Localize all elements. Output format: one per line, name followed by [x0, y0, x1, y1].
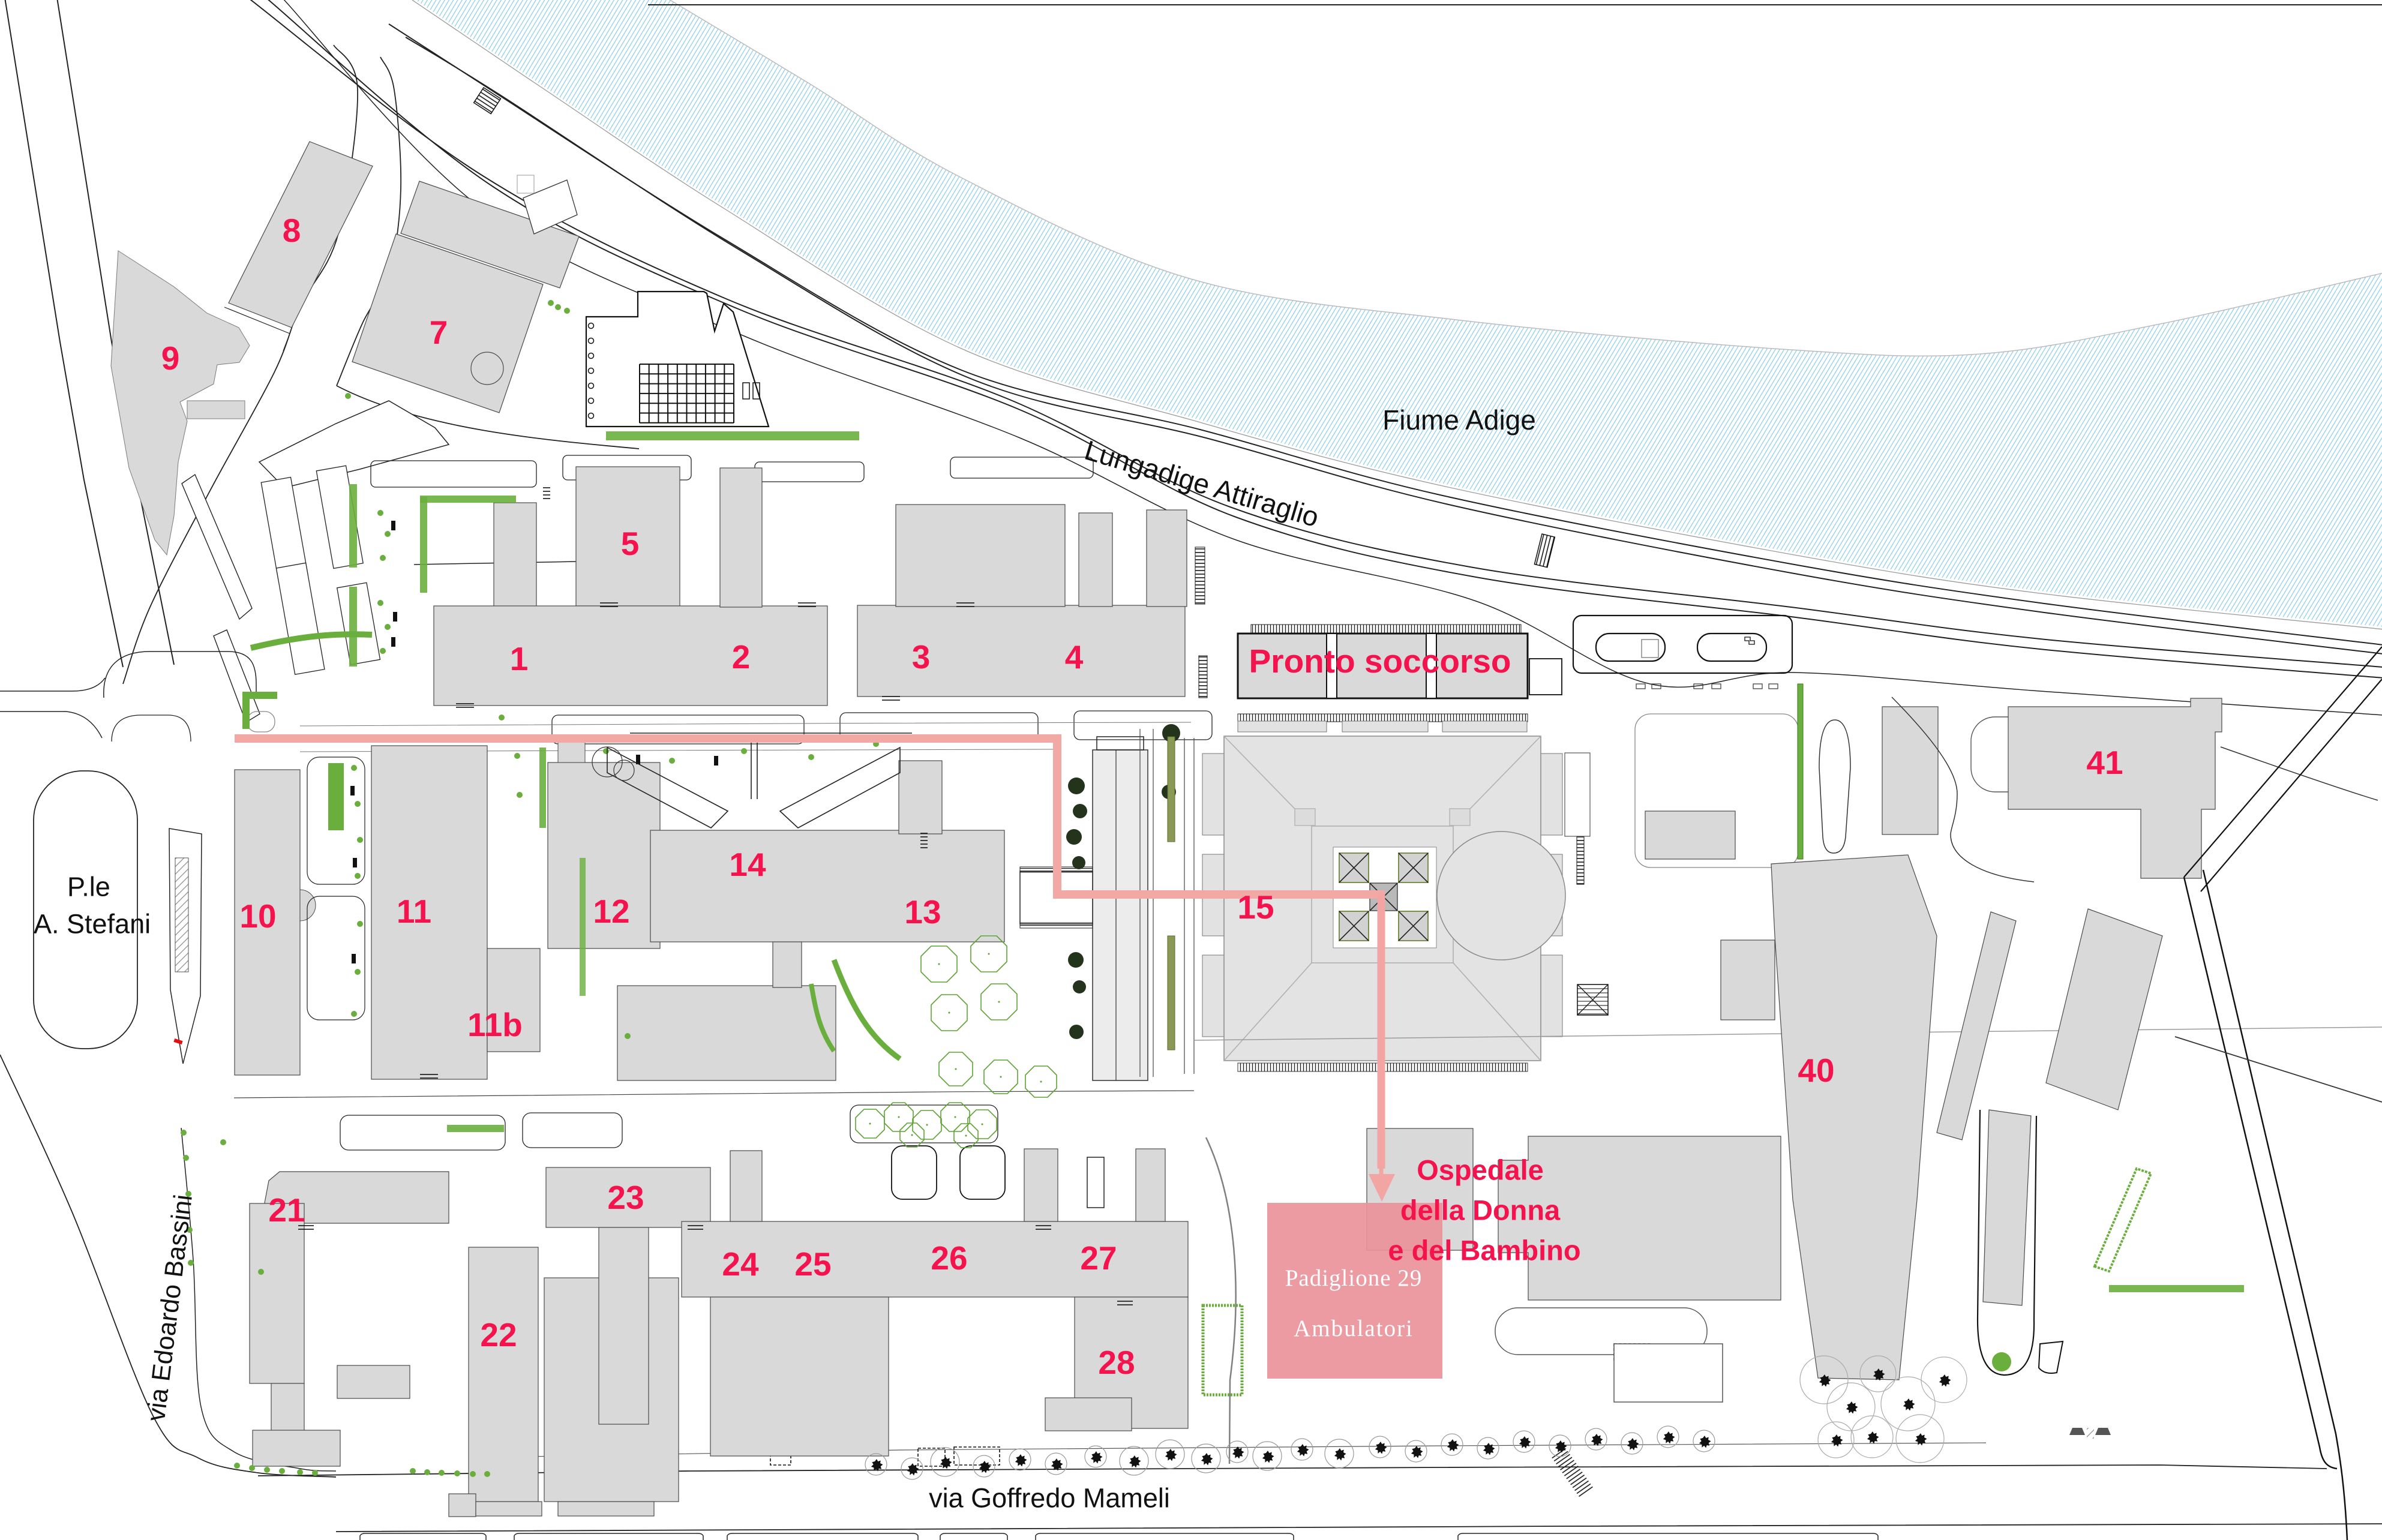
svg-text:28: 28	[1098, 1344, 1135, 1381]
svg-text:10: 10	[239, 897, 276, 935]
svg-text:3: 3	[912, 638, 931, 676]
svg-text:27: 27	[1080, 1239, 1117, 1277]
svg-text:e del Bambino: e del Bambino	[1388, 1235, 1580, 1266]
svg-text:1: 1	[510, 640, 529, 677]
svg-text:26: 26	[931, 1239, 967, 1277]
svg-text:11: 11	[397, 893, 431, 930]
svg-text:41: 41	[2086, 744, 2123, 781]
svg-text:24: 24	[722, 1245, 759, 1283]
svg-text:Ambulatori: Ambulatori	[1294, 1316, 1414, 1341]
svg-text:Fiume Adige: Fiume Adige	[1382, 404, 1536, 436]
svg-text:23: 23	[607, 1179, 644, 1216]
svg-text:via Goffredo Mameli: via Goffredo Mameli	[929, 1483, 1170, 1514]
svg-text:4: 4	[1065, 638, 1084, 676]
svg-text:2: 2	[732, 638, 751, 676]
svg-text:11b: 11b	[467, 1006, 523, 1043]
svg-text:P.le: P.le	[67, 872, 110, 902]
svg-text:Padiglione 29: Padiglione 29	[1285, 1265, 1423, 1291]
svg-text:Ospedale: Ospedale	[1417, 1154, 1544, 1186]
svg-text:14: 14	[729, 846, 766, 883]
svg-text:9: 9	[161, 340, 180, 377]
svg-text:15: 15	[1237, 888, 1274, 926]
svg-text:della Donna: della Donna	[1400, 1194, 1561, 1226]
svg-text:A. Stefani: A. Stefani	[34, 909, 151, 939]
svg-text:13: 13	[904, 893, 941, 930]
svg-text:21: 21	[268, 1191, 305, 1229]
svg-text:40: 40	[1798, 1052, 1834, 1089]
svg-text:25: 25	[794, 1245, 831, 1283]
svg-text:Pronto soccorso: Pronto soccorso	[1249, 643, 1511, 680]
svg-text:22: 22	[480, 1316, 517, 1353]
svg-text:8: 8	[283, 212, 301, 249]
svg-text:5: 5	[621, 525, 640, 562]
svg-text:7: 7	[430, 314, 448, 351]
svg-text:12: 12	[593, 893, 629, 930]
